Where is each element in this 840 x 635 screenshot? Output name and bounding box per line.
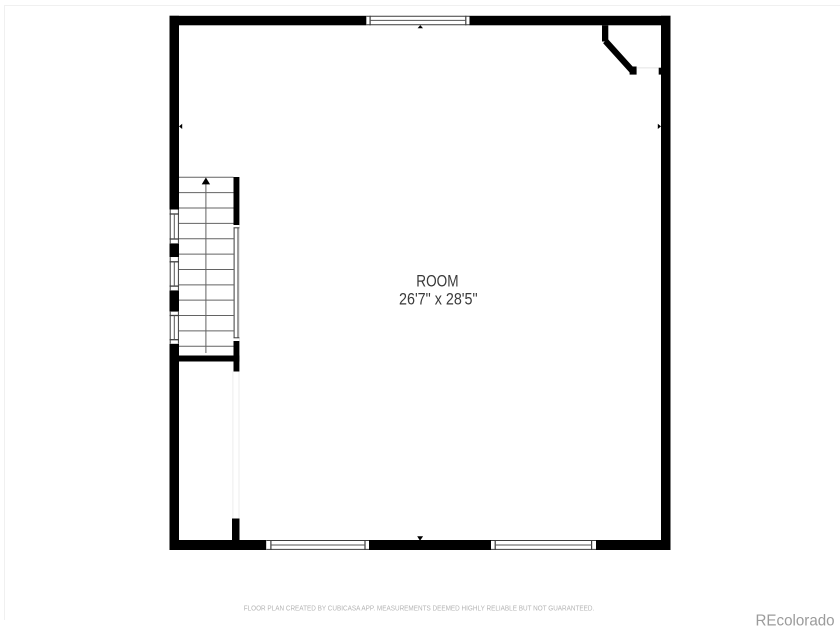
svg-text:26'7" x 28'5": 26'7" x 28'5"	[399, 291, 478, 309]
svg-text:ROOM: ROOM	[416, 273, 458, 291]
svg-text:FLOOR PLAN CREATED BY CUBICASA: FLOOR PLAN CREATED BY CUBICASA APP. MEAS…	[244, 604, 595, 613]
svg-text:REcolorado: REcolorado	[756, 612, 835, 629]
